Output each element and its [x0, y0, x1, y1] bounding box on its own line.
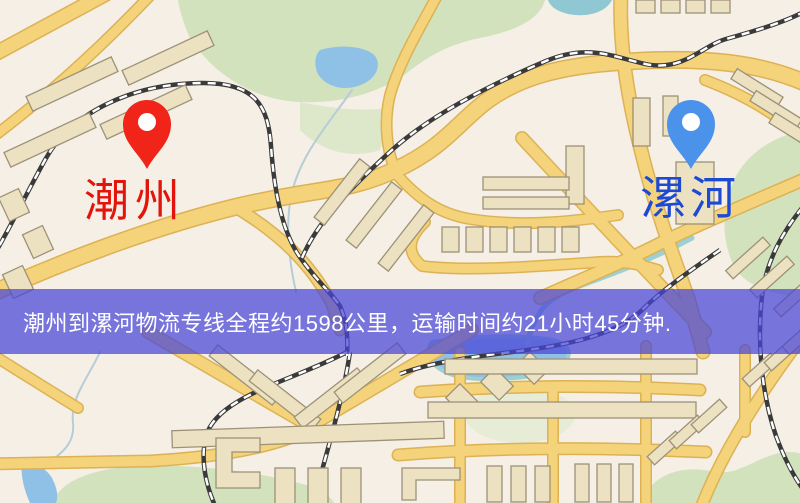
map-canvas: [0, 0, 800, 503]
destination-city-label: 漯河: [640, 176, 740, 222]
origin-city-label: 潮州: [84, 179, 186, 224]
route-info-banner: 潮州到漯河物流专线全程约1598公里，运输时间约21小时45分钟.: [0, 289, 800, 354]
map-image: 潮州 漯河 潮州到漯河物流专线全程约1598公里，运输时间约21小时45分钟.: [0, 0, 800, 503]
route-info-text: 潮州到漯河物流专线全程约1598公里，运输时间约21小时45分钟.: [23, 306, 672, 338]
